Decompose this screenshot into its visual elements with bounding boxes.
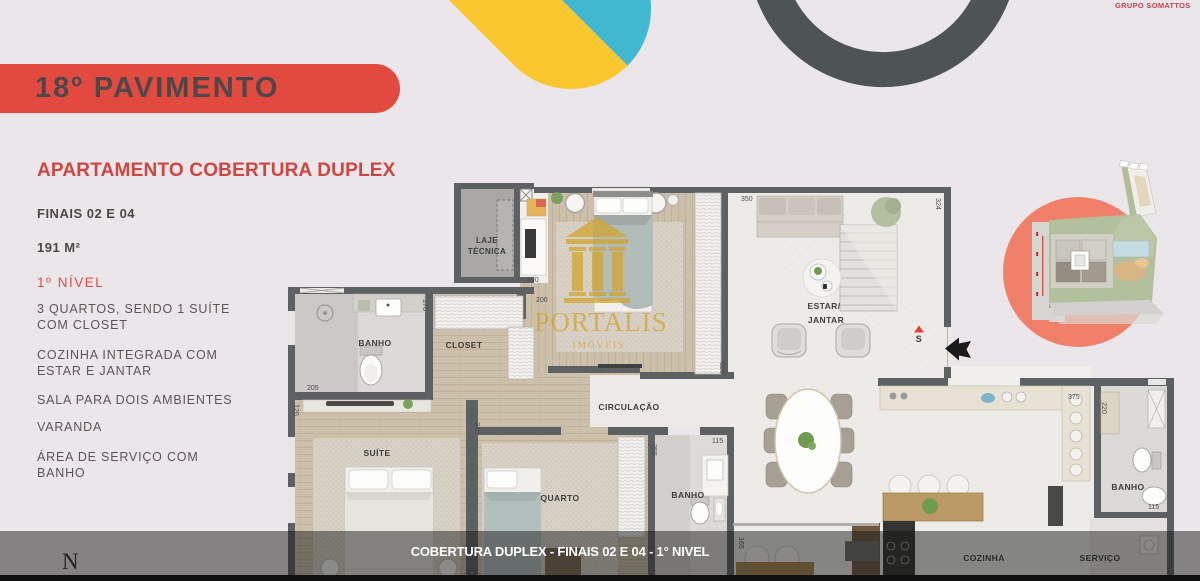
svg-text:255: 255 (650, 444, 657, 456)
svg-text:BANHO: BANHO (1111, 482, 1144, 492)
svg-text:LAJE: LAJE (476, 236, 498, 245)
svg-text:BANHO: BANHO (671, 490, 704, 500)
svg-text:BANHO: BANHO (358, 338, 391, 348)
svg-text:620: 620 (718, 362, 725, 374)
svg-text:JANTAR: JANTAR (808, 315, 844, 325)
svg-text:360: 360 (527, 277, 539, 284)
svg-text:115: 115 (712, 438, 723, 445)
svg-text:S: S (916, 334, 922, 344)
svg-text:205: 205 (307, 385, 319, 392)
svg-text:ESTAR/: ESTAR/ (808, 301, 841, 311)
svg-text:PORTALIS: PORTALIS (534, 307, 667, 337)
svg-text:200: 200 (536, 297, 548, 304)
svg-text:IMÓVEIS: IMÓVEIS (573, 340, 626, 350)
svg-text:220: 220 (1100, 402, 1107, 414)
svg-text:115: 115 (1148, 504, 1159, 511)
svg-text:350: 350 (741, 196, 753, 203)
svg-text:CIRCULAÇÃO: CIRCULAÇÃO (598, 402, 659, 412)
svg-text:CLOSET: CLOSET (446, 340, 483, 350)
svg-text:170: 170 (421, 299, 428, 311)
svg-text:324: 324 (934, 198, 941, 210)
svg-text:SUÍTE: SUÍTE (363, 448, 390, 458)
svg-text:245: 245 (473, 422, 480, 434)
svg-text:TÉCNICA: TÉCNICA (468, 247, 506, 256)
svg-text:375: 375 (1068, 394, 1080, 401)
svg-text:QUARTO: QUARTO (540, 493, 579, 503)
svg-text:126: 126 (292, 404, 299, 416)
